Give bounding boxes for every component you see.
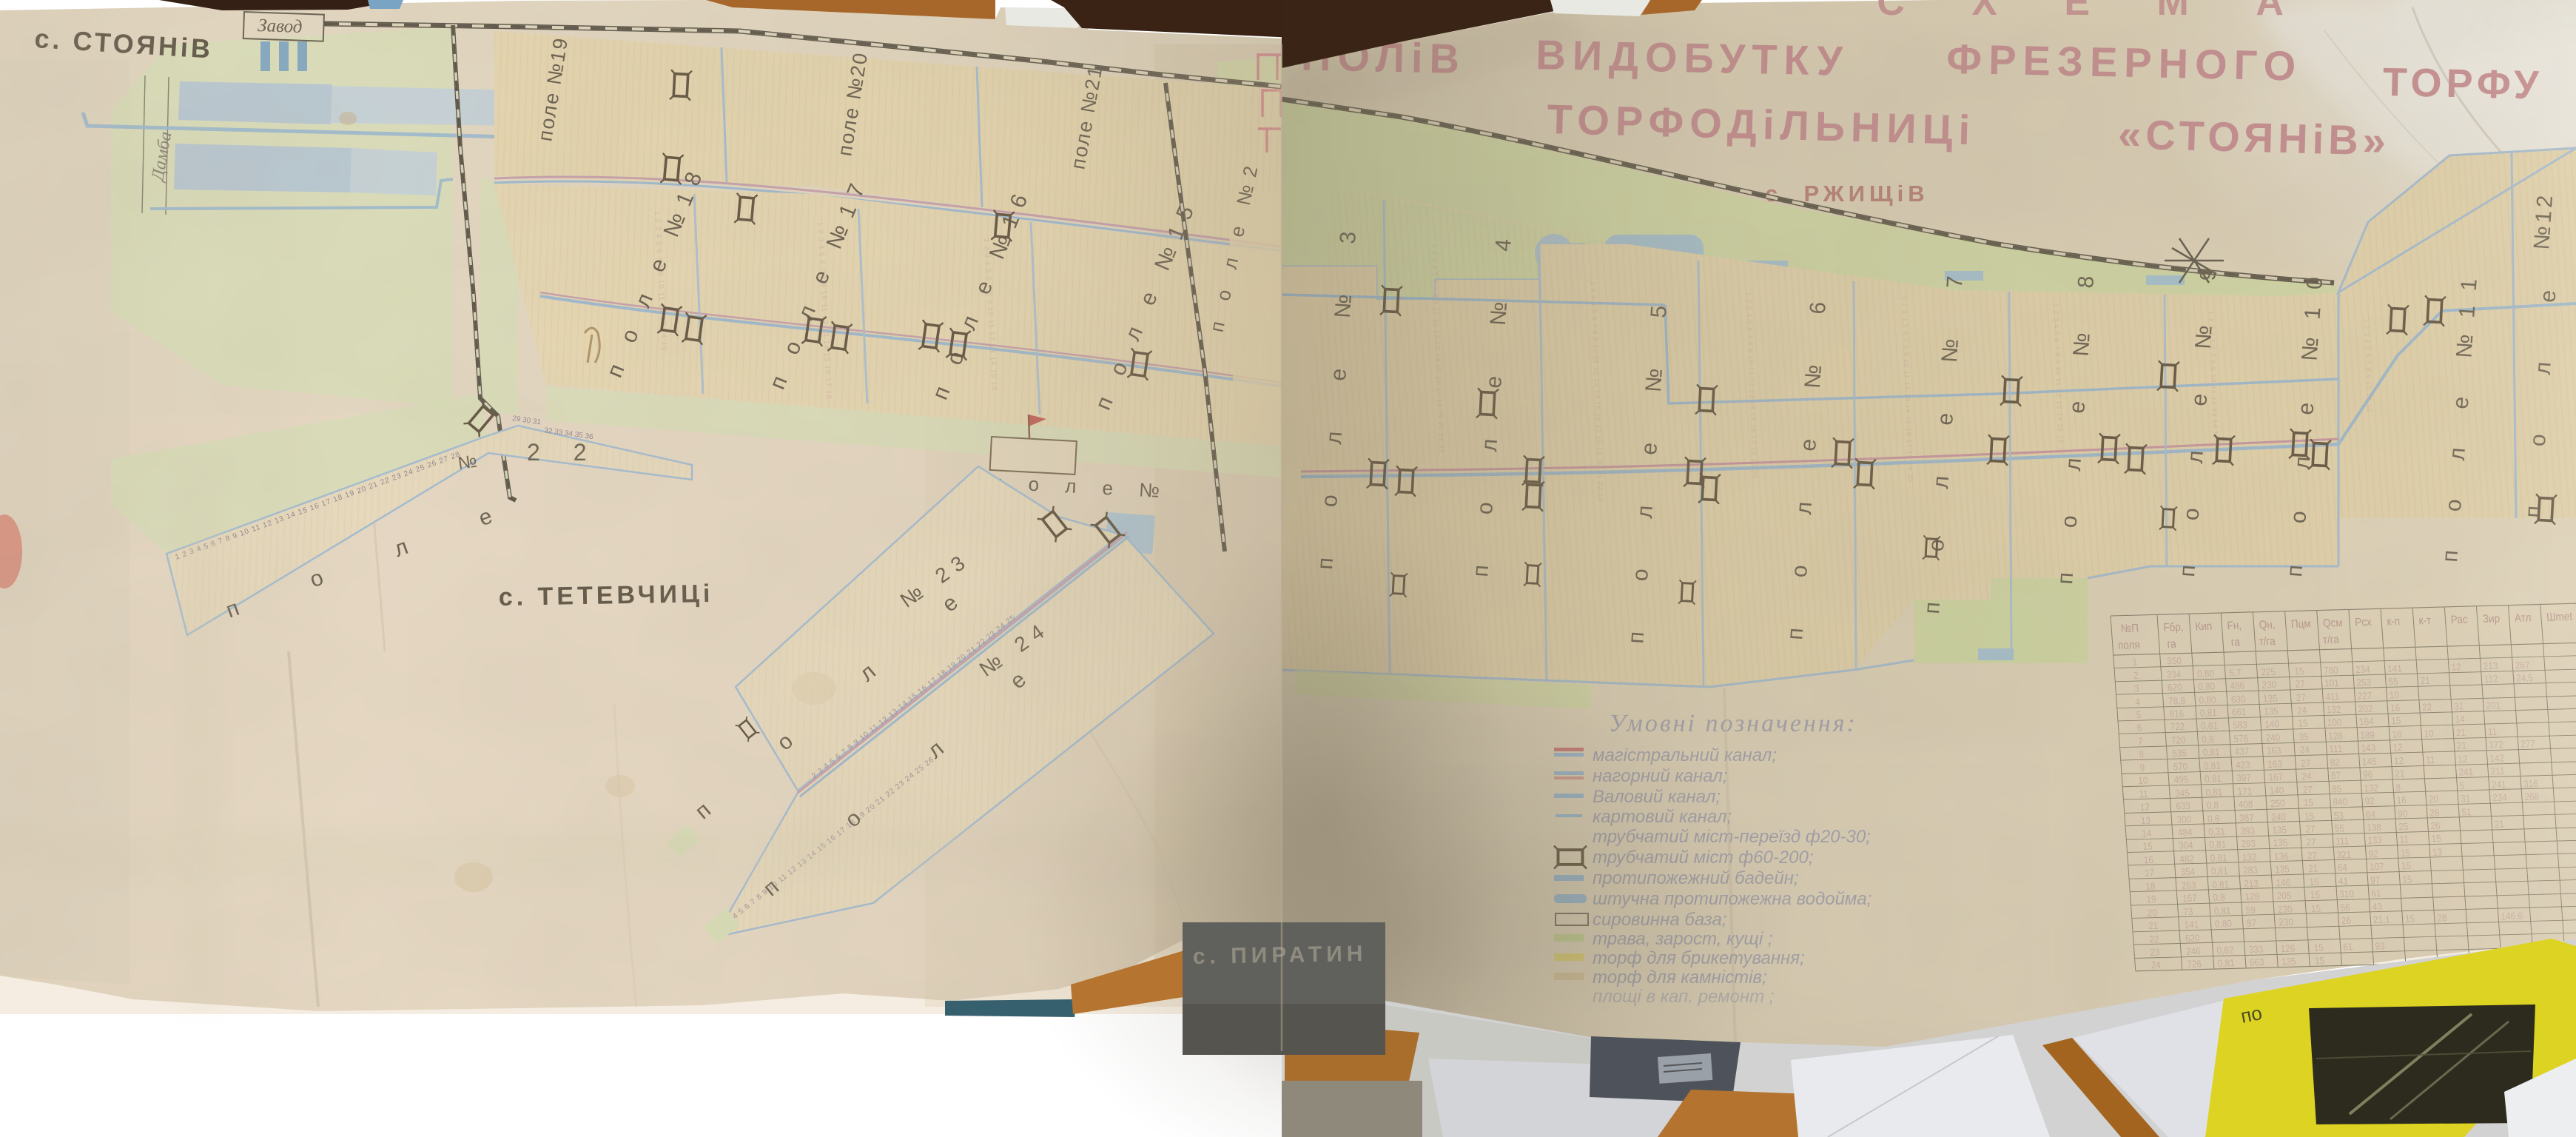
svg-text:по: по — [2239, 1002, 2264, 1027]
svg-text:с. ПИРАТИН: с. ПИРАТИН — [1193, 942, 1368, 969]
